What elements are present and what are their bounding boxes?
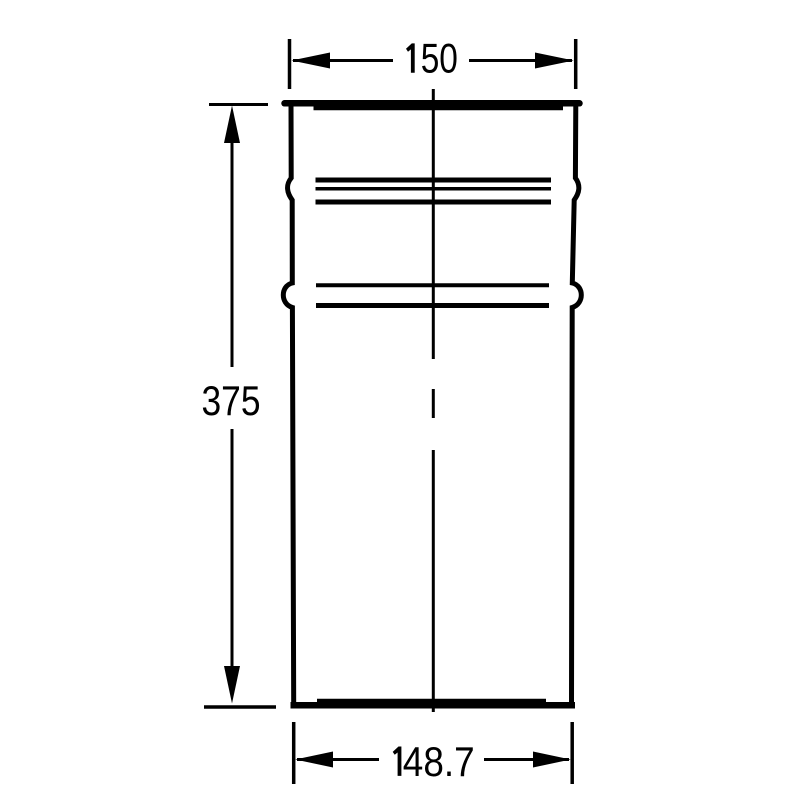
svg-text:50: 50 [421, 35, 458, 82]
svg-text:375: 375 [202, 377, 261, 424]
svg-text:48.7: 48.7 [403, 738, 475, 785]
